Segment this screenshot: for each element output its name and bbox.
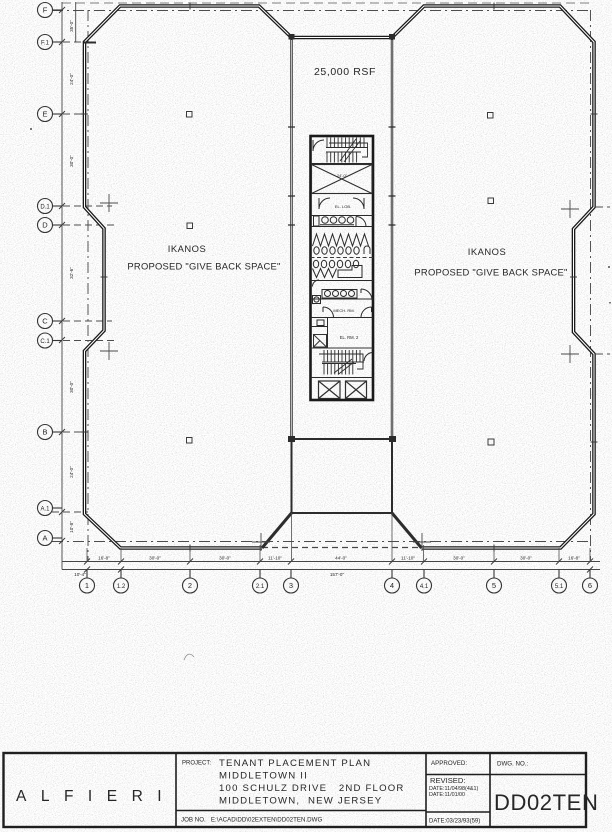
svg-text:JOB NO. E:\ACAD\DD\02EXTEN\D: JOB NO. E:\ACAD\DD\02EXTEN\DD02TEN.DWG (181, 817, 322, 824)
svg-text:35'-0": 35'-0" (69, 20, 74, 32)
svg-text:25,000 RSF: 25,000 RSF (314, 66, 376, 78)
svg-text:30'-0": 30'-0" (69, 381, 74, 393)
svg-text:D: D (42, 221, 48, 230)
svg-text:PROPOSED "GIVE BACK SPACE": PROPOSED "GIVE BACK SPACE" (127, 261, 280, 272)
svg-text:44'-0": 44'-0" (335, 556, 347, 561)
svg-text:157'-0": 157'-0" (330, 572, 345, 577)
svg-text:30'-0": 30'-0" (453, 556, 465, 561)
svg-text:10'-4": 10'-4" (74, 572, 86, 577)
svg-text:MIDDLETOWN, NEW JERSEY: MIDDLETOWN, NEW JERSEY (219, 796, 382, 807)
svg-text:10'-8": 10'-8" (69, 521, 74, 533)
svg-text:C: C (42, 317, 48, 326)
svg-text:2.1: 2.1 (256, 584, 265, 590)
svg-text:16'-8": 16'-8" (98, 556, 110, 561)
svg-text:5: 5 (492, 581, 496, 590)
svg-text:30'-0": 30'-0" (149, 556, 161, 561)
svg-text:D.1: D.1 (40, 205, 50, 211)
svg-text:REVISED:: REVISED: (430, 776, 465, 785)
svg-text:24'-0": 24'-0" (69, 73, 74, 85)
svg-text:16'-8": 16'-8" (568, 556, 580, 561)
svg-text:C.1: C.1 (40, 339, 50, 345)
svg-text:4: 4 (390, 581, 394, 590)
svg-text:EL. RM. 2: EL. RM. 2 (340, 335, 359, 340)
svg-text:5.1: 5.1 (555, 584, 564, 590)
svg-text:11'-10": 11'-10" (268, 556, 282, 561)
svg-text:6: 6 (588, 581, 592, 590)
svg-text:2: 2 (188, 581, 192, 590)
svg-text:DWG. NO.:: DWG. NO.: (497, 761, 529, 768)
svg-text:IKANOS: IKANOS (468, 246, 506, 257)
svg-text:F: F (43, 6, 48, 15)
svg-text:DD02TEN: DD02TEN (494, 790, 598, 815)
svg-text:1.2: 1.2 (117, 584, 126, 590)
svg-text:DATE:11/01/00: DATE:11/01/00 (429, 792, 465, 798)
svg-text:PROJECT:: PROJECT: (182, 761, 211, 767)
svg-text:24'-0": 24'-0" (69, 466, 74, 478)
svg-text:MECH. RM.: MECH. RM. (333, 308, 354, 313)
svg-text:32'-6": 32'-6" (69, 267, 74, 279)
svg-text:11'-10": 11'-10" (401, 556, 415, 561)
svg-text:3: 3 (289, 581, 293, 590)
svg-text:F.1: F.1 (41, 41, 50, 47)
svg-text:30'-0": 30'-0" (520, 556, 532, 561)
svg-text:1: 1 (85, 581, 89, 590)
svg-text:APPROVED:: APPROVED: (431, 760, 467, 767)
svg-text:EL. LOB.: EL. LOB. (335, 204, 351, 209)
svg-text:ALFIERI: ALFIERI (16, 788, 176, 805)
svg-text:30'-0": 30'-0" (69, 155, 74, 167)
svg-text:30'-0": 30'-0" (219, 556, 231, 561)
svg-text:E: E (42, 110, 47, 119)
svg-text:IKANOS: IKANOS (168, 243, 206, 254)
svg-text:B: B (42, 428, 47, 437)
svg-text:4.1: 4.1 (420, 584, 429, 590)
svg-text:MIDDLETOWN II: MIDDLETOWN II (219, 771, 308, 782)
svg-text:A: A (42, 534, 47, 543)
svg-text:PROPOSED "GIVE BACK SPACE": PROPOSED "GIVE BACK SPACE" (414, 267, 567, 278)
svg-text:TENANT PLACEMENT PLAN: TENANT PLACEMENT PLAN (219, 758, 371, 769)
svg-text:DATE:03/23/93(59): DATE:03/23/93(59) (429, 819, 480, 825)
svg-text:A.1: A.1 (40, 507, 50, 513)
svg-text:24'-0": 24'-0" (337, 173, 348, 178)
svg-text:100 SCHULZ DRIVE 2ND FLOOR: 100 SCHULZ DRIVE 2ND FLOOR (219, 783, 405, 794)
